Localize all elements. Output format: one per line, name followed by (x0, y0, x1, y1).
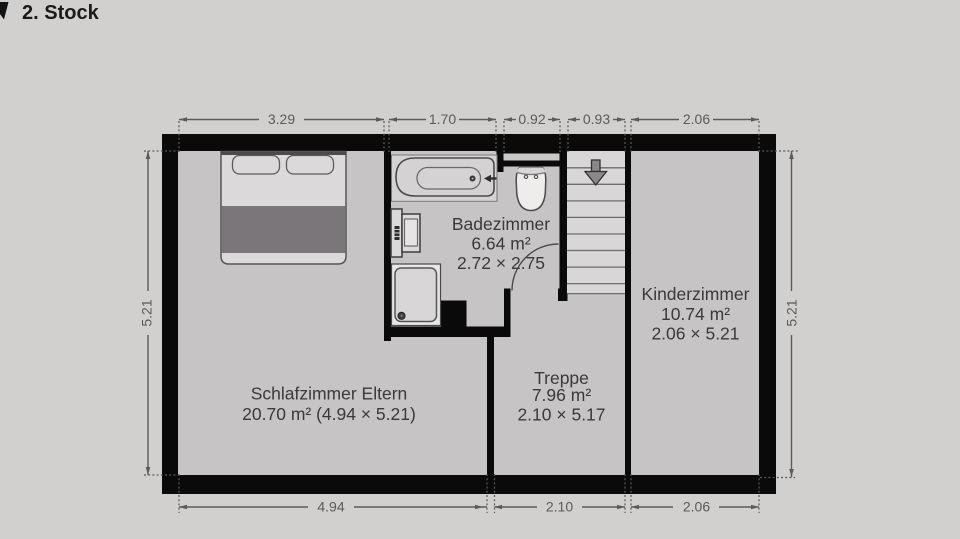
svg-text:2. Stock: 2. Stock (22, 2, 100, 24)
svg-text:2.10: 2.10 (546, 499, 573, 515)
svg-text:2.10 × 5.17: 2.10 × 5.17 (517, 405, 605, 425)
svg-text:2.72 × 2.75: 2.72 × 2.75 (457, 253, 545, 273)
svg-text:1.70: 1.70 (429, 111, 456, 127)
svg-text:2.06: 2.06 (683, 499, 710, 515)
svg-text:Schlafzimmer Eltern: Schlafzimmer Eltern (251, 384, 408, 404)
svg-text:20.70 m² (4.94 × 5.21): 20.70 m² (4.94 × 5.21) (242, 404, 416, 424)
svg-text:4.94: 4.94 (317, 499, 344, 515)
svg-text:5.21: 5.21 (784, 299, 800, 326)
svg-text:6.64 m²: 6.64 m² (471, 234, 530, 254)
svg-text:Badezimmer: Badezimmer (452, 214, 550, 234)
svg-text:7.96 m²: 7.96 m² (532, 385, 591, 405)
svg-text:10.74 m²: 10.74 m² (661, 304, 730, 324)
svg-text:5.21: 5.21 (139, 299, 155, 326)
svg-text:0.93: 0.93 (583, 111, 610, 127)
svg-text:2.06: 2.06 (683, 111, 710, 127)
svg-text:2.06 × 5.21: 2.06 × 5.21 (651, 324, 739, 344)
svg-text:3.29: 3.29 (268, 111, 295, 127)
svg-text:0.92: 0.92 (518, 111, 545, 127)
svg-text:Kinderzimmer: Kinderzimmer (642, 284, 750, 304)
